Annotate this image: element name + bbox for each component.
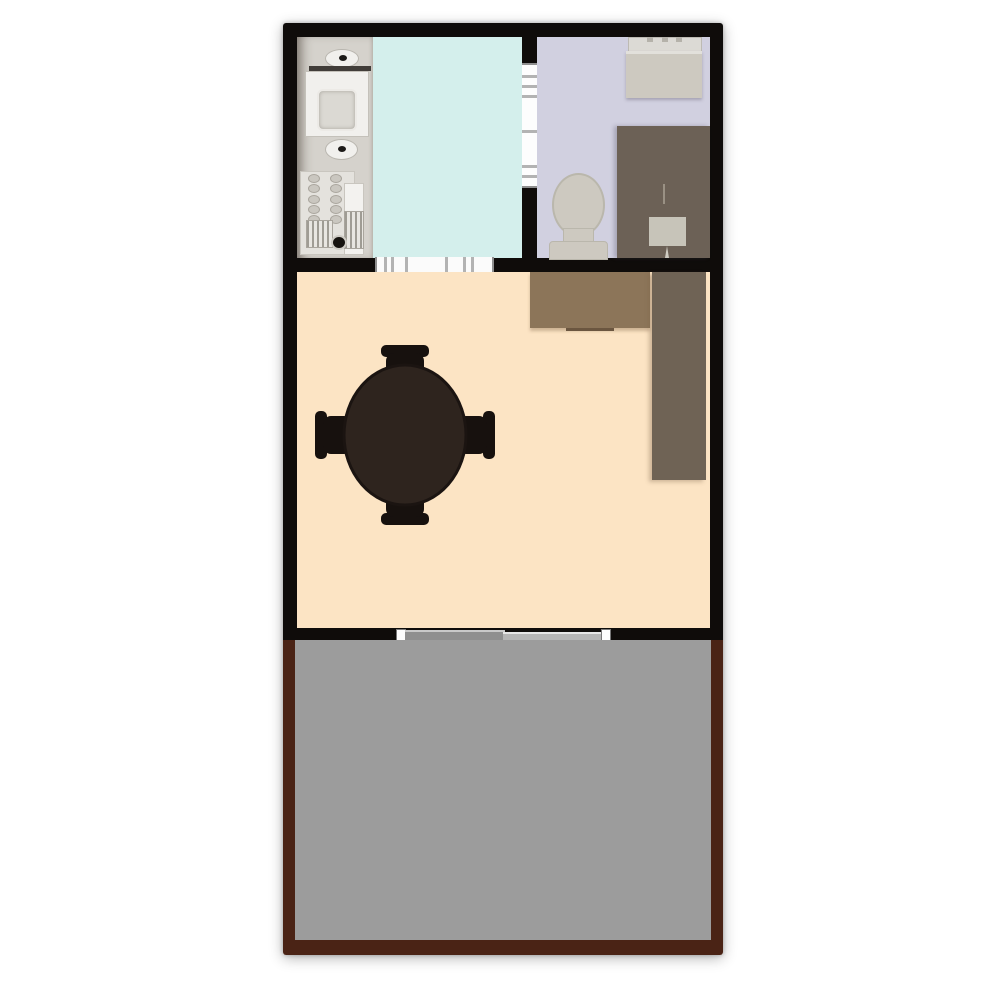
floor-plan (283, 23, 723, 955)
sideboard (530, 272, 650, 328)
kitchen-window (375, 257, 494, 272)
stove-knobs (303, 174, 347, 224)
terrace-floor (295, 640, 711, 940)
table-lamp-icon (649, 217, 686, 246)
armchair-base (549, 241, 608, 260)
wardrobe (652, 272, 706, 480)
sliding-door-panel (405, 630, 505, 640)
faucet-dot-icon (339, 55, 347, 61)
dresser (626, 51, 702, 98)
grill-icon (306, 220, 333, 248)
lamp-wire (663, 184, 665, 204)
stove-dot-icon (331, 235, 347, 250)
grill-icon (344, 211, 364, 249)
divider-window (522, 63, 537, 188)
screenshot-root: { "app": { "type": "floor-plan-viewer", … (0, 0, 1000, 1007)
faucet-dot-icon (338, 146, 346, 152)
sink-basin-icon (317, 89, 357, 131)
dining-set (300, 330, 510, 540)
sliding-door-panel (503, 632, 602, 640)
kitchen-floor (373, 37, 522, 258)
dining-table-icon (344, 365, 466, 505)
